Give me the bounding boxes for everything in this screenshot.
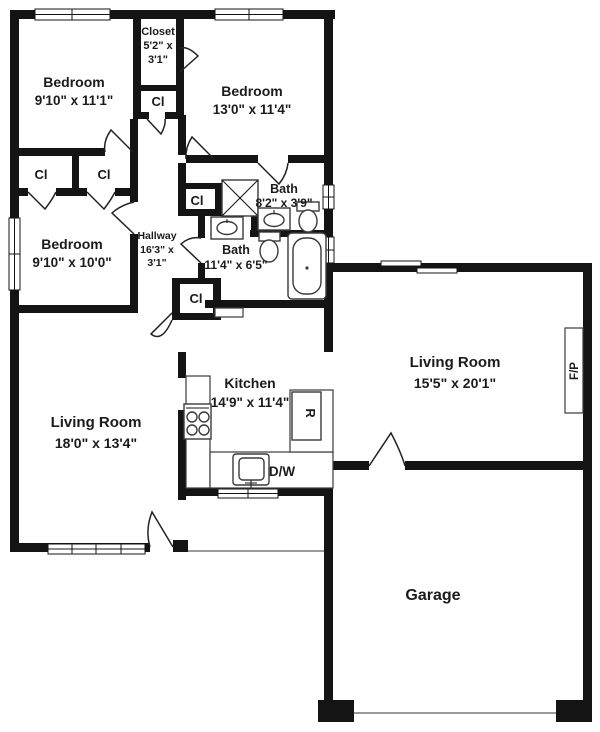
bath-large-sink <box>211 217 243 239</box>
closet-ci-1: Cl <box>152 94 165 109</box>
bedroom-left-name: Bedroom <box>41 236 102 252</box>
living-right-dims: 15'5" x 20'1" <box>414 375 496 391</box>
bath-small-dims: 8'2" x 3'9" <box>255 196 312 210</box>
door-closet-lower <box>151 313 172 337</box>
door-closet-hall <box>147 119 165 134</box>
door-bath-large <box>181 238 201 263</box>
door-closet-b <box>87 192 115 209</box>
door-garage <box>369 433 405 466</box>
door-bedroom-left <box>112 202 134 234</box>
bedroom-top-right-dims: 13'0" x 11'4" <box>213 102 292 117</box>
bath-large-dims: 11'4" x 6'5" <box>204 258 267 272</box>
closet-ci-4: Cl <box>191 193 204 208</box>
door-bedroom-top-left <box>105 130 133 152</box>
window-bedroom-top-right <box>215 9 283 20</box>
fixtures <box>184 180 583 488</box>
closet-top-name: Closet <box>141 26 175 38</box>
room-labels: Bedroom 9'10" x 11'1" Closet 5'2" x 3'1"… <box>32 26 581 604</box>
kitchen-name: Kitchen <box>224 375 275 391</box>
closet-ci-2: Cl <box>35 167 48 182</box>
window-bath-small <box>323 185 334 209</box>
living-right-name: Living Room <box>410 354 501 371</box>
hallway-name: Hallway <box>137 230 176 242</box>
window-living-left <box>48 544 145 554</box>
bathtub <box>288 233 326 299</box>
bath-small-sink <box>258 208 290 230</box>
hallway-dims1: 16'3" x <box>140 244 174 256</box>
garage-name: Garage <box>405 587 460 604</box>
closet-ci-5: Cl <box>190 291 203 306</box>
closet-top-dims2: 3'1" <box>148 54 168 66</box>
bath-bulkhead <box>215 308 243 317</box>
window-bedroom-left <box>9 218 20 290</box>
door-closet-a <box>28 192 56 209</box>
floor-plan-svg: Bedroom 9'10" x 11'1" Closet 5'2" x 3'1"… <box>0 0 600 732</box>
closet-ci-3: Cl <box>98 167 111 182</box>
door-entry <box>148 512 173 547</box>
kitchen-range <box>184 404 211 439</box>
hallway-dims2: 3'1" <box>147 257 166 269</box>
bedroom-top-left-name: Bedroom <box>43 74 104 90</box>
dishwasher-label: D/W <box>269 464 296 479</box>
living-left-name: Living Room <box>51 414 142 431</box>
bedroom-top-left-dims: 9'10" x 11'1" <box>35 93 114 108</box>
door-bath-small <box>258 163 288 184</box>
fireplace-label: F/P <box>569 362 581 380</box>
window-bedroom-top-left <box>35 9 110 20</box>
refrigerator-label: R <box>303 408 318 418</box>
living-left-dims: 18'0" x 13'4" <box>55 435 137 451</box>
exterior-walls <box>10 10 592 722</box>
kitchen-dims: 14'9" x 11'4" <box>211 395 290 410</box>
window-kitchen <box>218 489 278 498</box>
linen-closet-x <box>222 180 258 216</box>
bath-large-name: Bath <box>222 243 250 257</box>
bath-small-name: Bath <box>270 182 298 196</box>
kitchen-sink <box>233 454 269 488</box>
bedroom-left-dims: 9'10" x 10'0" <box>32 255 111 270</box>
closet-top-dims1: 5'2" x <box>143 40 173 52</box>
bedroom-top-right-name: Bedroom <box>221 83 282 99</box>
floor-plan-page: Bedroom 9'10" x 11'1" Closet 5'2" x 3'1"… <box>0 0 600 732</box>
